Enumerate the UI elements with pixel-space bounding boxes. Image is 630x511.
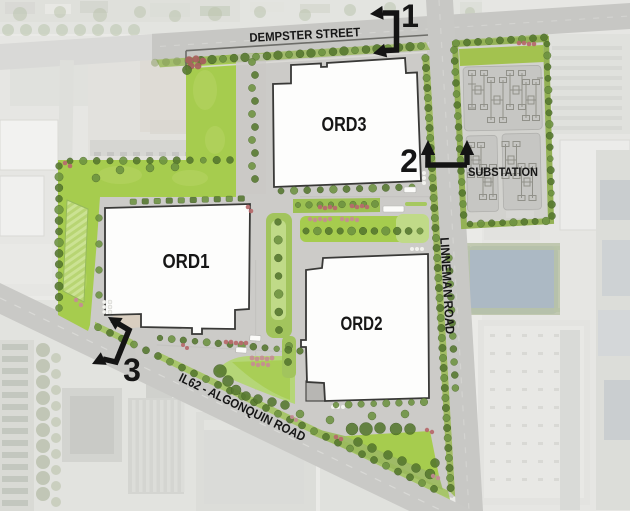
svg-text:ORD2: ORD2: [341, 313, 383, 335]
svg-text:ORD3: ORD3: [322, 114, 367, 136]
svg-text:2: 2: [400, 143, 418, 179]
svg-text:3: 3: [123, 352, 141, 388]
svg-text:ORD1: ORD1: [163, 251, 210, 273]
svg-text:1: 1: [401, 0, 419, 34]
svg-text:SUBSTATION: SUBSTATION: [468, 165, 538, 179]
